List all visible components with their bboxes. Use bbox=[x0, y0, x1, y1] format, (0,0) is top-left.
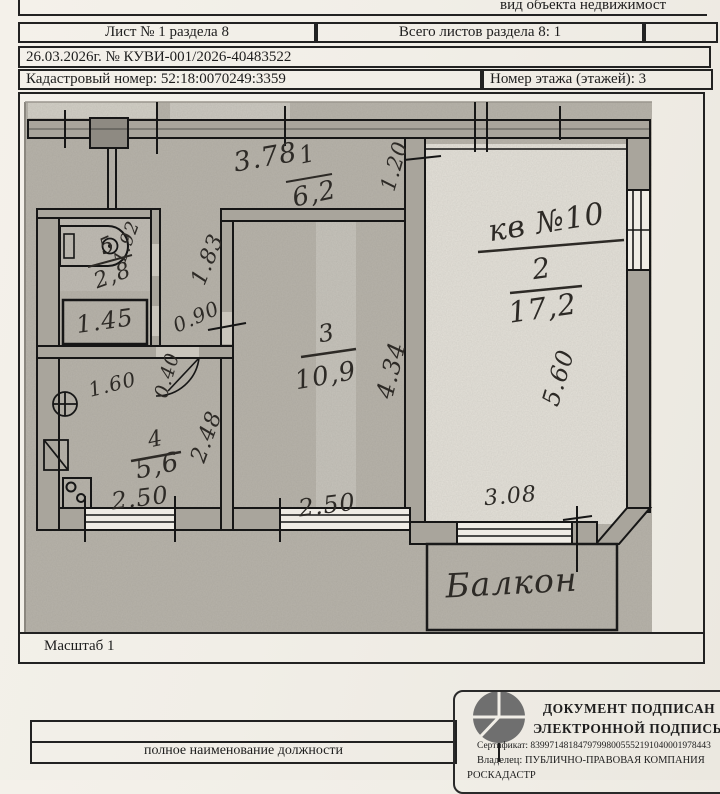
position-empty-row bbox=[32, 722, 455, 743]
bath-top-wall bbox=[37, 209, 160, 218]
floor-number-cell: Номер этажа (этажей): 3 bbox=[480, 69, 713, 90]
signature-stamp: ДОКУМЕНТ ПОДПИСАН ЭЛЕКТРОННОЙ ПОДПИСЬЮ С… bbox=[453, 690, 720, 794]
kitchen-top-wall bbox=[37, 346, 233, 358]
corridor-wall bbox=[221, 209, 233, 530]
dim-room2-window: 3.08 bbox=[483, 482, 538, 512]
total-sheets-label: Всего листов раздела 8: 1 bbox=[399, 24, 561, 41]
rooms-divider-wall bbox=[405, 138, 425, 522]
balcony-label: Балкон bbox=[443, 560, 578, 606]
position-caption: полное наименование должности bbox=[32, 743, 455, 759]
scale-label: Масштаб 1 bbox=[44, 638, 114, 655]
sheet-number-label: Лист № 1 раздела 8 bbox=[105, 24, 229, 41]
position-table: полное наименование должности bbox=[30, 720, 457, 764]
right-wall-lower bbox=[627, 270, 650, 512]
room2-window bbox=[457, 522, 572, 544]
object-kind-caption: вид объекта недвижимост bbox=[500, 0, 720, 14]
doc-number-row: 26.03.2026г. № КУВИ-001/2026-40483522 bbox=[18, 46, 711, 68]
right-wall-upper bbox=[627, 138, 650, 190]
left-wall bbox=[37, 209, 59, 530]
floor-plan: 3.78 1 6,2 1.20 кв №10 2 17,2 5.60 3 10,… bbox=[20, 94, 703, 632]
scale-row: Масштаб 1 bbox=[20, 632, 703, 661]
stamp-title-line1: ДОКУМЕНТ ПОДПИСАН bbox=[533, 701, 720, 717]
stamp-owner-line2: РОСКАДАСТР bbox=[467, 770, 536, 781]
sheet-number-cell: Лист № 1 раздела 8 bbox=[18, 22, 316, 43]
stamp-certificate: Сертификат: 8399714818479799800555219104… bbox=[477, 741, 711, 751]
stamp-owner-line1: Владелец: ПУБЛИЧНО-ПРАВОВАЯ КОМПАНИЯ bbox=[477, 755, 705, 766]
floor-plan-frame: 3.78 1 6,2 1.20 кв №10 2 17,2 5.60 3 10,… bbox=[18, 92, 705, 664]
cadastral-number: Кадастровый номер: 52:18:0070249:3359 bbox=[26, 71, 286, 88]
stamp-title-line2: ЭЛЕКТРОННОЙ ПОДПИСЬЮ bbox=[533, 721, 720, 737]
empty-header-cell bbox=[644, 22, 718, 43]
ventilation-shaft bbox=[90, 118, 128, 148]
sink-icon bbox=[53, 392, 77, 416]
floor-number: Номер этажа (этажей): 3 bbox=[490, 71, 646, 88]
cadastral-number-cell: Кадастровый номер: 52:18:0070249:3359 bbox=[18, 69, 484, 90]
doc-date-number: 26.03.2026г. № КУВИ-001/2026-40483522 bbox=[26, 49, 291, 66]
scanned-cadastral-document: { "header": { "object_kind_label": "вид … bbox=[0, 0, 720, 780]
right-wall-window bbox=[627, 190, 650, 270]
total-sheets-cell: Всего листов раздела 8: 1 bbox=[316, 22, 644, 43]
hall-bottom-wall bbox=[221, 209, 415, 221]
